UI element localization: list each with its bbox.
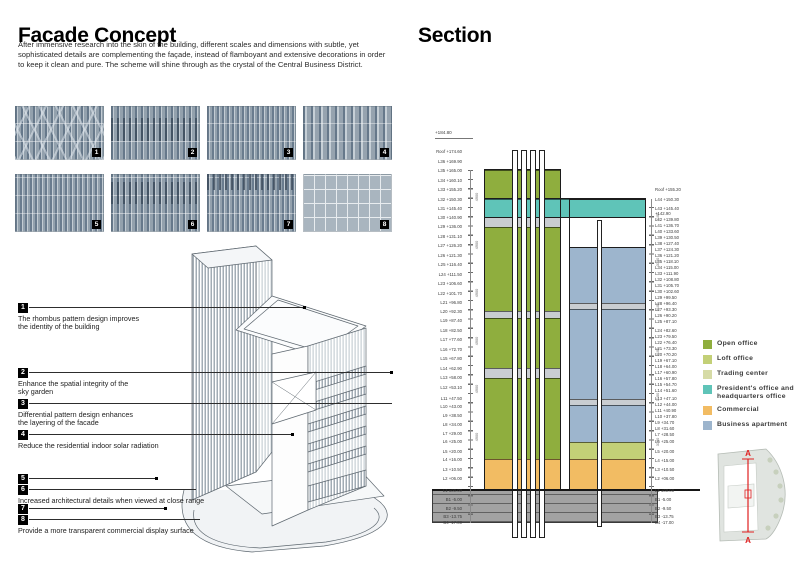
pattern-number-badge: 6 xyxy=(188,220,197,229)
facade-pattern-swatch: 4 xyxy=(303,106,392,160)
floor-label: B4 -17.00 xyxy=(443,520,462,525)
annotation-arrow-dot xyxy=(291,433,294,436)
dimension-number: 3100 xyxy=(656,393,660,401)
legend-label: Loft office xyxy=(717,355,753,363)
floor-label: L18 +82.50 xyxy=(440,328,462,333)
legend-item: Trading center xyxy=(703,370,798,379)
trading-center-swatch xyxy=(703,370,712,379)
comb-overlay xyxy=(111,118,200,141)
pattern-number-badge: 5 xyxy=(92,220,101,229)
core-strip-right xyxy=(597,220,602,527)
open-office-swatch xyxy=(703,340,712,349)
floor-label: L8 +34.00 xyxy=(443,422,462,427)
facade-pattern-swatch: 5 xyxy=(15,174,104,232)
floor-label: B2 -9.50 xyxy=(446,506,462,511)
floor-label: L32 +108.80 xyxy=(655,277,679,282)
floor-label: L30 +140.90 xyxy=(438,215,462,220)
key-plan: A A xyxy=(712,446,794,546)
floor-label: L1 ±00.00 xyxy=(443,488,462,493)
dimension-number: 3100 xyxy=(656,303,660,311)
top-level-line xyxy=(435,138,473,139)
section-marker-bottom: A xyxy=(745,536,751,545)
floor-label: L10 +37.80 xyxy=(655,414,677,419)
comb-overlay xyxy=(111,182,200,204)
pattern-number-badge: 8 xyxy=(380,220,389,229)
annotation-line xyxy=(29,403,392,404)
floor-label: L33 +111.90 xyxy=(655,271,678,276)
annotation-badge: 8 xyxy=(18,515,28,525)
facade-pattern-swatch: 8 xyxy=(303,174,392,232)
floor-label: L4 +15.00 xyxy=(655,458,674,463)
pattern-number-badge: 2 xyxy=(188,148,197,157)
legend-label: Open office xyxy=(717,340,758,348)
floor-label: L22 +76.40 xyxy=(655,340,677,345)
dimension-number: 3100 xyxy=(656,438,660,446)
legend-label: President's office and headquarters offi… xyxy=(717,385,798,400)
annotation-badge: 5 xyxy=(18,474,28,484)
floor-label: L3 +10.50 xyxy=(655,467,674,472)
annotation-badge: 2 xyxy=(18,368,28,378)
commercial-swatch xyxy=(703,406,712,415)
annotation-badge: 4 xyxy=(18,430,28,440)
annotation-line xyxy=(29,307,305,308)
floor-label: L17 +60.90 xyxy=(655,370,677,375)
facade-pattern-swatch: 2 xyxy=(111,106,200,160)
floor-label: L30 +102.60 xyxy=(655,289,679,294)
legend-item: Open office xyxy=(703,340,798,349)
pattern-number-badge: 3 xyxy=(284,148,293,157)
loft-office-swatch xyxy=(703,355,712,364)
annotation-line xyxy=(29,434,293,435)
floor-label: L24 +111.50 xyxy=(439,272,462,277)
pattern-number-badge: 4 xyxy=(380,148,389,157)
floor-label: L27 +126.20 xyxy=(438,243,462,248)
floor-label: L44 +150.30 xyxy=(655,197,679,202)
bridge-outline xyxy=(484,198,646,218)
floor-label: Roof +174.60 xyxy=(436,149,462,154)
floor-label: L34 +160.10 xyxy=(438,178,462,183)
floor-label: L22 +101.70 xyxy=(438,291,462,296)
annotation-badge: 7 xyxy=(18,504,28,514)
floor-label: B1 -5.00 xyxy=(655,497,671,502)
floor-label: L40 +133.60 xyxy=(655,229,679,234)
floor-label: L7 +28.50 xyxy=(655,432,674,437)
dimension-number: 4900 xyxy=(475,433,479,441)
floor-label: L39 +130.50 xyxy=(655,235,679,240)
floor-label: L35 +165.00 xyxy=(438,168,462,173)
floor-label: L17 +77.60 xyxy=(440,337,462,342)
annotation-line xyxy=(29,508,166,509)
annotation-badge: 3 xyxy=(18,399,28,409)
floor-label: Roof +155.20 xyxy=(655,187,681,192)
floor-label: L31 +145.40 xyxy=(438,206,462,211)
annotation-text: Reduce the residential indoor solar radi… xyxy=(18,442,268,450)
floor-label: L26 +90.20 xyxy=(655,313,677,318)
annotation-line xyxy=(29,372,392,373)
annotation-arrow-dot xyxy=(164,507,167,510)
floor-label: B1 -5.00 xyxy=(446,497,462,502)
section-legend: Open officeLoft officeTrading centerPres… xyxy=(703,340,798,430)
floor-label: L37 +124.30 xyxy=(655,247,679,252)
annotation-text: Differential pattern design enhancesthe … xyxy=(18,411,188,428)
floor-label: L9 +34.70 xyxy=(655,420,674,425)
dimension-number: 4900 xyxy=(475,289,479,297)
axonometric-drawing xyxy=(168,234,400,556)
floor-label: B3 -13.75 xyxy=(443,514,462,519)
zone-basement xyxy=(432,490,658,523)
dimension-number: 3100 xyxy=(656,213,660,221)
floor-label: L15 +67.80 xyxy=(440,356,462,361)
floor-label: L3 +10.50 xyxy=(443,467,462,472)
right-tower-outline xyxy=(569,199,646,491)
annotation-text: Enhance the spatial integrity of thesky … xyxy=(18,380,178,397)
floor-label: L12 +44.00 xyxy=(655,402,677,407)
building-footprint-inner xyxy=(728,484,754,508)
floor-label: L4 +16.00 xyxy=(443,457,462,462)
core-strip xyxy=(530,150,536,538)
dimension-number: 3100 xyxy=(656,258,660,266)
dimension-number: 4900 xyxy=(475,241,479,249)
annotation-arrow-dot xyxy=(303,306,306,309)
annotation-badge: 6 xyxy=(18,485,28,495)
annotation-text: Provide a more transparent commercial di… xyxy=(18,527,288,535)
floor-label: L41 +136.70 xyxy=(655,223,679,228)
pattern-number-badge: 7 xyxy=(284,220,293,229)
legend-item: Loft office xyxy=(703,355,798,364)
floor-label: L20 +92.30 xyxy=(440,309,462,314)
floor-label: L25 +87.10 xyxy=(655,319,677,324)
dimension-line-right xyxy=(649,199,654,523)
floor-label: L16 +72.70 xyxy=(440,347,462,352)
floor-label: L28 +131.10 xyxy=(438,234,462,239)
floor-label: B3 -13.75 xyxy=(655,514,674,519)
section-marker-top: A xyxy=(745,449,751,458)
core-strip xyxy=(521,150,527,538)
floor-label: L19 +87.40 xyxy=(440,318,462,323)
floor-label: L2 +06.00 xyxy=(655,476,674,481)
annotation-text: Increased architectural details when vie… xyxy=(18,497,288,505)
floor-label: L25 +116.40 xyxy=(438,262,462,267)
floor-label: L23 +79.50 xyxy=(655,334,677,339)
floor-label: L14 +62.90 xyxy=(440,366,462,371)
floor-label: L12 +53.10 xyxy=(440,385,462,390)
dimension-number: 4900 xyxy=(475,193,479,201)
floor-label: L7 +29.00 xyxy=(443,431,462,436)
annotation-line xyxy=(29,519,200,520)
facade-pattern-swatch: 1 xyxy=(15,106,104,160)
dimension-number: 3100 xyxy=(656,348,660,356)
annotation-arrow-dot xyxy=(390,371,393,374)
floor-label: L29 +136.00 xyxy=(438,224,462,229)
dimension-line-left xyxy=(468,170,473,523)
business-apartment-swatch xyxy=(703,421,712,430)
floor-label: L16 +57.80 xyxy=(655,376,677,381)
floor-label: L11 +40.90 xyxy=(655,408,676,413)
facade-intro: After immensive research into the skin o… xyxy=(18,40,390,70)
floor-label: L29 +99.50 xyxy=(655,295,677,300)
annotation-line xyxy=(29,478,157,479)
floor-label: L36 +169.90 xyxy=(438,159,462,164)
floor-label: L31 +105.70 xyxy=(655,283,679,288)
floor-label: L26 +121.30 xyxy=(438,253,462,258)
facade-pattern-swatch: 6 xyxy=(111,174,200,232)
floor-label: L1 ±00.00 xyxy=(655,488,674,493)
floor-label: L21 +96.80 xyxy=(440,300,462,305)
president-office-swatch xyxy=(703,385,712,394)
floor-label: L15 +54.70 xyxy=(655,382,677,387)
floor-label: L8 +31.60 xyxy=(655,426,674,431)
legend-label: Trading center xyxy=(717,370,768,378)
floor-label: L23 +106.60 xyxy=(438,281,462,286)
legend-label: Business apartment xyxy=(717,421,787,429)
floor-label: L10 +43.00 xyxy=(440,404,462,409)
floor-label: L6 +25.00 xyxy=(443,439,462,444)
legend-label: Commercial xyxy=(717,406,759,414)
floor-label: L11 +47.50 xyxy=(441,396,462,401)
floor-label: L9 +38.50 xyxy=(443,413,462,418)
section-title: Section xyxy=(418,24,492,48)
dimension-number: 4900 xyxy=(475,337,479,345)
legend-item: Business apartment xyxy=(703,421,798,430)
top-elevation-label: +184.80 xyxy=(435,130,452,135)
core-strip xyxy=(539,150,545,538)
floor-label: B2 -9.50 xyxy=(655,506,671,511)
floor-label: L24 +82.60 xyxy=(655,328,677,333)
pattern-number-badge: 1 xyxy=(92,148,101,157)
floor-label: L19 +67.10 xyxy=(655,358,677,363)
annotation-text: The rhombus pattern design improvesthe i… xyxy=(18,315,178,332)
legend-item: President's office and headquarters offi… xyxy=(703,385,798,400)
tall-tower-side-face xyxy=(256,246,272,472)
core-strip xyxy=(512,150,518,538)
comb-overlay xyxy=(207,174,296,190)
floor-label: L5 +20.00 xyxy=(655,449,674,454)
floor-label: L33 +155.20 xyxy=(438,187,462,192)
floor-label: L2 +06.00 xyxy=(443,476,462,481)
facade-pattern-swatch: 7 xyxy=(207,174,296,232)
floor-label: L13 +58.00 xyxy=(440,375,462,380)
annotation-arrow-dot xyxy=(155,477,158,480)
legend-item: Commercial xyxy=(703,406,798,415)
floor-label: L32 +150.30 xyxy=(438,197,462,202)
rhombus-overlay xyxy=(15,106,104,160)
floor-label: L18 +64.00 xyxy=(655,364,677,369)
floor-label: L5 +20.00 xyxy=(443,449,462,454)
floor-label: B4 -17.00 xyxy=(655,520,674,525)
floor-label: L38 +127.40 xyxy=(655,241,679,246)
facade-pattern-swatch: 3 xyxy=(207,106,296,160)
annotation-badge: 1 xyxy=(18,303,28,313)
presentation-board: Facade Concept After immensive research … xyxy=(0,0,800,565)
tall-tower-front-face xyxy=(192,246,256,500)
dimension-number: 4900 xyxy=(475,385,479,393)
annotation-line xyxy=(29,489,196,490)
